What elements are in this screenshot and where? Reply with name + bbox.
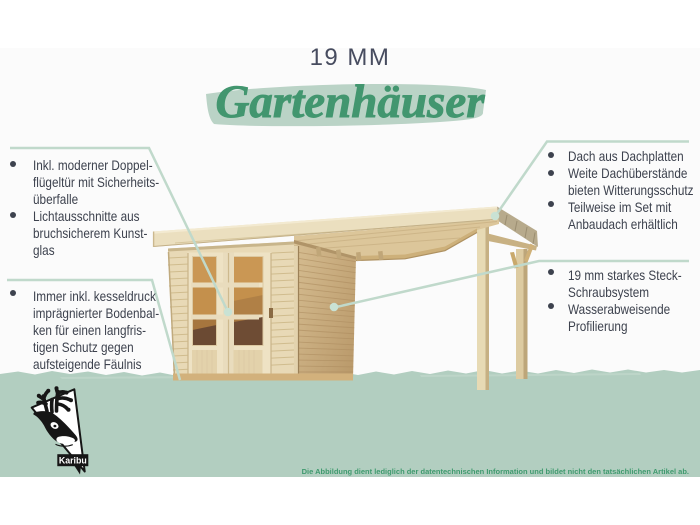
svg-text:Karibu: Karibu — [59, 456, 87, 466]
svg-text:Die Abbildung dient lediglich: Die Abbildung dient lediglich der datent… — [302, 467, 689, 476]
svg-text:Gartenhäuser: Gartenhäuser — [215, 76, 485, 128]
